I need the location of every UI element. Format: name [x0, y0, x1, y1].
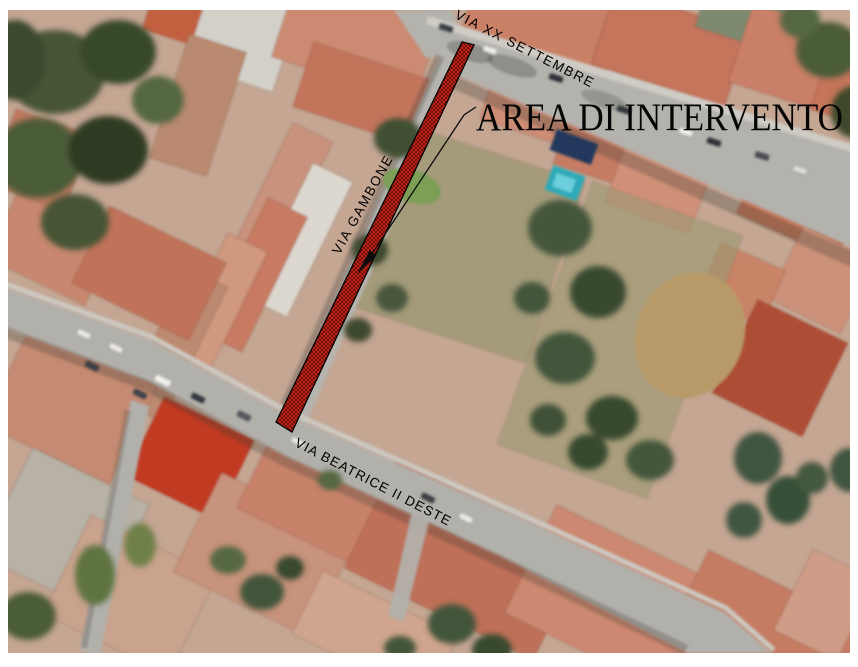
aerial-photo-frame: AREA DI INTERVENTO VIA XX SETTEMBRE VIA …	[0, 0, 858, 667]
label-area-di-intervento: AREA DI INTERVENTO	[476, 98, 843, 137]
figure-page: AREA DI INTERVENTO VIA XX SETTEMBRE VIA …	[0, 0, 858, 667]
